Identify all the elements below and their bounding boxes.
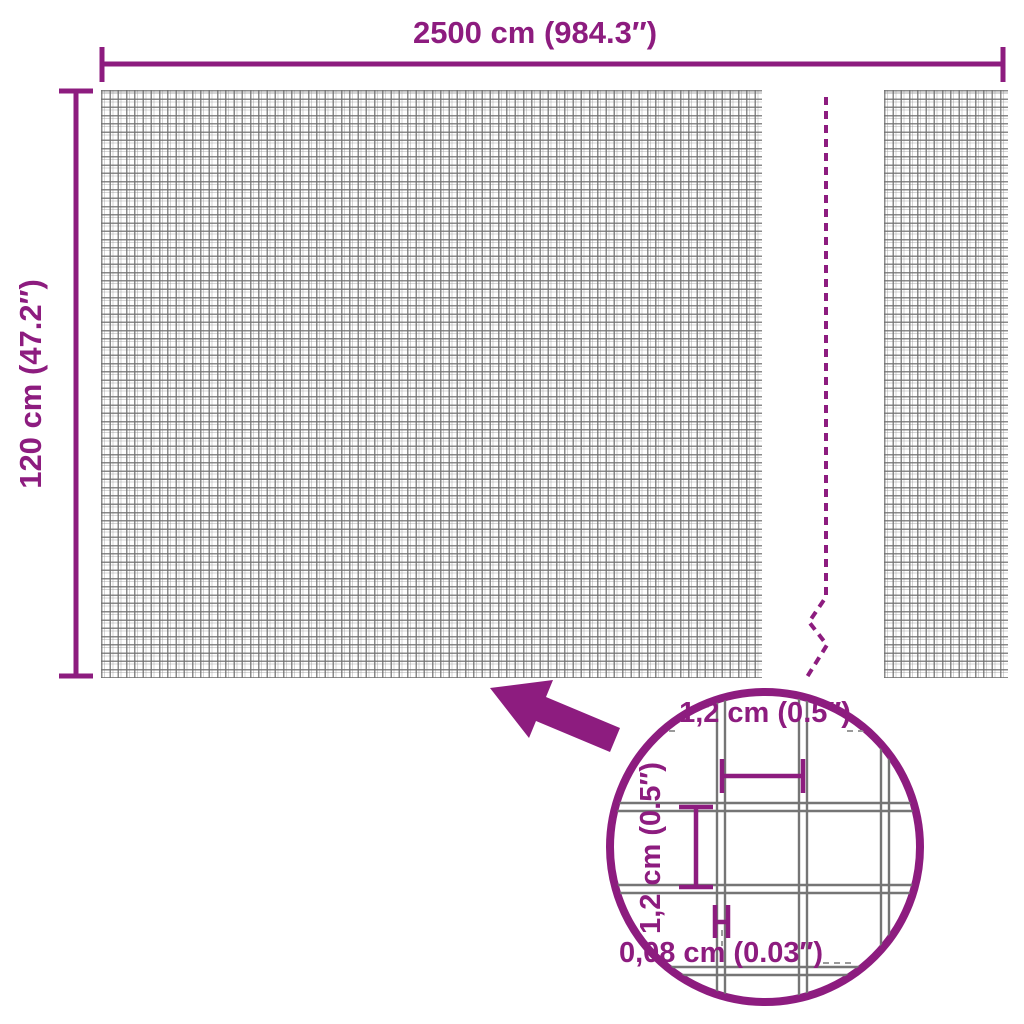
detail-cell-height-label: 1,2 cm (0.5″) — [635, 762, 667, 934]
break-line — [807, 97, 827, 677]
product-dimension-diagram: 2500 cm (984.3″) 120 cm (47.2″) — [0, 0, 1024, 1024]
zoom-arrow-icon — [490, 680, 620, 752]
width-dimension: 2500 cm (984.3″) — [102, 15, 1003, 82]
height-dimension: 120 cm (47.2″) — [13, 91, 93, 676]
diagram-overlay: 2500 cm (984.3″) 120 cm (47.2″) — [0, 0, 1024, 1024]
detail-magnifier: 1,2 cm (0.5″) 1,2 cm (0.5″) 0,08 cm (0.0… — [605, 690, 925, 1005]
detail-wire-thickness-label: 0,08 cm (0.03″) — [619, 937, 823, 969]
detail-cell-width-label: 1,2 cm (0.5″) — [679, 697, 851, 729]
width-dimension-label: 2500 cm (984.3″) — [413, 15, 657, 50]
height-dimension-label: 120 cm (47.2″) — [13, 279, 48, 489]
